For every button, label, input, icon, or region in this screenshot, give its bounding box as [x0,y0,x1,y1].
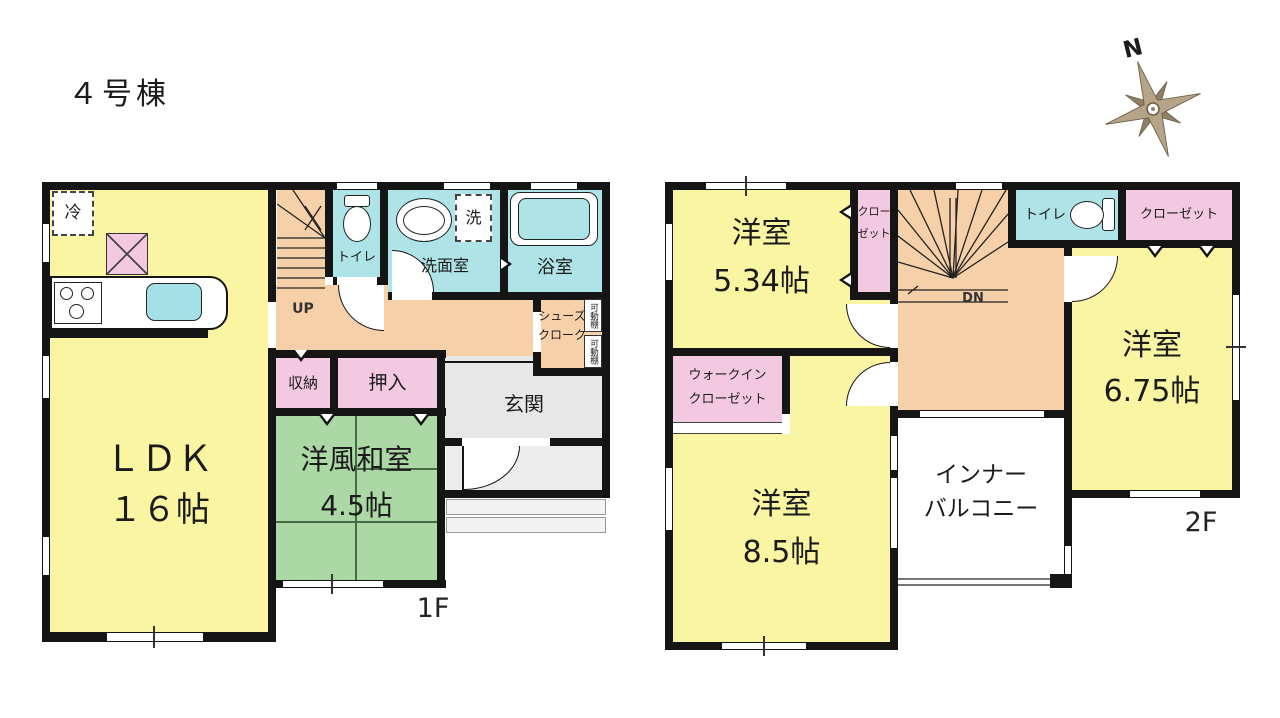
door-opening [337,277,377,285]
window [531,182,577,190]
window [337,182,377,190]
window-tick [153,626,155,648]
bedroom-534-size-label: 5.34帖 [673,262,850,302]
wall [850,292,898,300]
window-tick [745,176,747,196]
shoes-cloak-label-2: クローク [539,327,585,343]
door-notch [295,350,307,358]
floor-1f-label: 1F [398,592,468,626]
wall [533,368,610,376]
wall [602,182,610,498]
page-title: ４号棟 [68,74,278,116]
wall [380,182,388,285]
front-door-leaf [462,446,464,490]
balcony-railing [898,578,1052,586]
stove-burner-icon [81,287,94,300]
stove-burner-icon [69,304,84,319]
washbasin-inner-icon [403,206,445,235]
porch-step-1 [446,499,606,515]
balcony-window [920,410,1044,418]
bathroom-label: 浴室 [508,256,602,280]
balcony-window [890,436,898,470]
bath-door-notch [501,259,508,269]
bedroom-85-size-label: 8.5帖 [673,532,890,574]
toilet-1f-label: トイレ [333,248,380,268]
washitsu-size-label: 4.5帖 [276,488,437,524]
stairs-down-label: DN [950,290,996,308]
closet-side-label-2: ゼット [852,226,896,242]
window [42,224,50,262]
closet-top-label: クローゼット [1126,205,1232,225]
hallway-2f-b [1008,248,1064,312]
compass-rose: N [1098,52,1208,162]
stairs-1f-icon [277,190,325,302]
storage-label: 収納 [276,370,330,398]
balcony-window [890,478,898,548]
porch-step-2 [446,517,606,533]
balcony-window [1064,546,1072,574]
toilet-bowl-2f-icon [1070,201,1104,229]
door-opening [890,362,898,406]
wall [782,348,790,422]
bedroom-534-name-label: 洋室 [673,214,850,254]
door-notch [321,414,333,422]
toilet-2f-label: トイレ [1018,204,1072,226]
wall [1008,240,1126,248]
genkan-label: 玄関 [446,390,602,418]
ldk-name-label: ＬＤＫ [59,438,259,482]
floor-2f-label: 2F [1166,506,1236,540]
bedroom-675-size-label: 6.75帖 [1072,372,1232,412]
door-opening [890,304,898,348]
balcony-label-2: バルコニー [898,494,1064,524]
kitchen-half-wall [42,330,208,338]
wall [1118,182,1126,248]
door-notch [415,414,427,422]
window [444,182,490,190]
window-tick [763,636,765,656]
wic-label-1: ウォークイン [673,366,782,386]
ldk-size-label: １６帖 [59,490,259,532]
wic-shelf [673,422,782,434]
wall [437,350,445,588]
door-notch [1201,246,1213,254]
washitsu-name-label: 洋風和室 [276,442,437,478]
closet-side-label-1: クロー [852,204,896,220]
wall [325,182,333,277]
bedroom-85-name-label: 洋室 [673,484,890,526]
wic-label-2: クローゼット [673,390,782,410]
balcony-corner [1050,574,1072,588]
wic-opening [782,414,790,422]
bathtub-inner-icon [518,198,590,240]
wall [1008,182,1016,248]
door-opening [462,438,550,446]
window [42,537,50,575]
wall [438,490,610,498]
hallway-2f-a [898,312,1064,410]
door-opening [392,292,432,300]
wall [1118,240,1240,248]
window [42,356,50,398]
window [665,468,673,530]
window [283,580,383,588]
kitchen-hatch-icon [106,233,148,275]
door-notch [1149,246,1161,254]
fridge-label: 冷 [52,191,94,236]
wall [330,350,338,416]
wall [665,348,890,356]
balcony-label-1: インナー [898,460,1064,490]
floorplan-canvas: ４号棟 N [0,0,1280,718]
ldk-room [50,190,268,638]
bedroom-675-name-label: 洋室 [1072,326,1232,366]
window [956,182,1002,190]
window [107,632,203,642]
laundry-label: 洗 [455,194,492,242]
kitchen-sink-icon [146,283,202,321]
oshiire-label: 押入 [338,368,437,400]
window-tick [331,574,333,594]
movable-shelf-label: 可動棚 [584,336,602,367]
genkan-step-line [445,361,533,363]
window [1130,490,1200,498]
hallway-1f-b [388,300,533,356]
stove-burner-icon [60,287,73,300]
stairs-up-label: UP [280,299,326,319]
door-opening [268,302,276,348]
wall [500,182,508,300]
shoes-cloak-label-1: シューズ [539,308,585,324]
window [665,224,673,280]
washroom-label: 洗面室 [390,254,500,278]
compass-star-icon [1098,52,1208,162]
toilet-bowl-1f-icon [343,206,371,242]
door-opening [1064,256,1072,302]
movable-shelf-label: 可動棚 [584,300,602,331]
